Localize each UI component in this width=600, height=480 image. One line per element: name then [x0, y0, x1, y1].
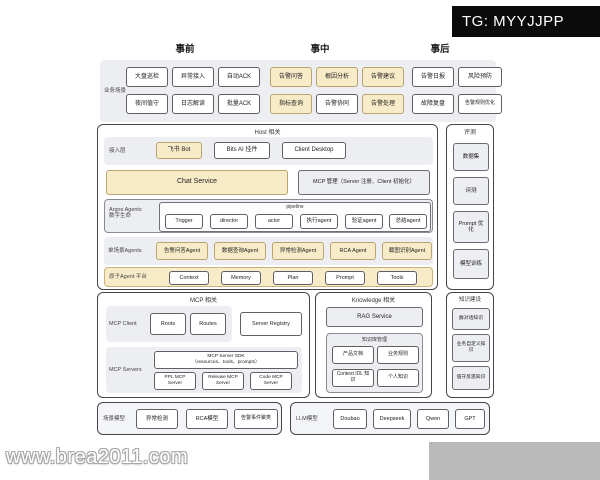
scene-models-frame: 场景模型 异常检测 RCA模型 告警事件聚类 — [97, 402, 282, 435]
business-scenario-box: 自动ACK — [218, 67, 260, 87]
server-registry-box: Server Registry — [240, 312, 302, 336]
bottom-right-overlay — [429, 442, 600, 480]
tg-watermark-bar: TG: MYYJJPP — [452, 6, 600, 37]
kb-management-title: 知识库管理 — [327, 336, 422, 343]
kb-item-box: 业务规则 — [377, 346, 419, 364]
chat-service-box: Chat Service — [106, 170, 288, 195]
prompt-optimize-box: Prompt 优化 — [453, 211, 489, 243]
agent-box: 异常检测Agent — [272, 242, 324, 260]
group-chat-knowledge-box: 群对话知识 — [452, 308, 490, 330]
kb-item-box: Context IDL 知识 — [332, 369, 374, 387]
host-frame: Host 相关 接入层 飞书 Bot Bits AI 挂件 Client Des… — [97, 124, 438, 290]
dataset-box: 数据集 — [453, 143, 489, 171]
pipeline-stage-box: Trigger — [165, 214, 203, 229]
phase-header-during: 事中 — [290, 41, 350, 55]
business-scenario-box: 告警协同 — [316, 94, 358, 114]
kb-item-box: 产品文档 — [332, 346, 374, 364]
llm-box: GPT — [455, 409, 485, 429]
business-scenario-box: 风险预防 — [458, 67, 502, 87]
llm-models-label: LLM模型 — [296, 415, 318, 421]
pipeline-stage-box: 验证agent — [345, 214, 383, 229]
phase-header-post: 事后 — [410, 41, 470, 55]
site-watermark-text: www.brea2011.com — [6, 446, 188, 469]
mcp-client-panel: MCP Client Roots Routes — [106, 306, 232, 342]
business-scenario-box: 夜间值守 — [126, 94, 168, 114]
llm-box: Doubao — [333, 409, 367, 429]
kb-management-panel: 知识库管理 产品文档 业务规则 Context IDL 知识 个人知识 — [326, 333, 423, 393]
pipeline-box: pipeline Trigger director actor 执行agent … — [159, 202, 431, 232]
agent-box: 数据查询Agent — [214, 242, 266, 260]
mcp-manage-box: MCP 管理（Server 注册、Client 初始化） — [298, 170, 430, 195]
host-frame-title: Host 相关 — [98, 127, 437, 136]
business-scenarios-label: 业务场景 — [104, 88, 126, 94]
sdk-line2: （resources、tools、prompts） — [192, 360, 260, 366]
scene-models-label: 场景模型 — [103, 415, 125, 421]
mcp-server-sdk-box: MCP Server SDK （resources、tools、prompts） — [154, 351, 298, 369]
business-scenario-box: 告警处理 — [362, 94, 404, 114]
agent-box: RCA Agent — [330, 242, 376, 260]
mcp-servers-panel: MCP Servers MCP Server SDK （resources、to… — [106, 347, 302, 393]
evaluation-frame: 评测 数据集 评测 Prompt 优化 模型训练 — [446, 124, 494, 290]
business-scenario-box: 故障复盘 — [412, 94, 454, 114]
pipeline-title: pipeline — [160, 204, 430, 210]
rag-service-box: RAG Service — [326, 307, 423, 327]
business-scenario-box: 指标查询 — [270, 94, 312, 114]
kb-item-box: 个人知识 — [377, 369, 419, 387]
bits-ai-widget-box: Bits AI 挂件 — [214, 142, 270, 159]
agent-box: 截图识别Agent — [382, 242, 432, 260]
pipeline-stage-box: 执行agent — [300, 214, 338, 229]
pipeline-stage-box: actor — [255, 214, 293, 229]
pipeline-stage-box: 总结agent — [389, 214, 427, 229]
scene-model-box: 异常检测 — [136, 409, 178, 429]
tg-watermark-text: TG: MYYJJPP — [462, 13, 564, 30]
business-scenario-box: 告警建议 — [362, 67, 404, 87]
access-layer-label: 接入层 — [109, 148, 126, 154]
atomic-capability-box: Plan — [273, 271, 313, 285]
business-scenario-box: 异常接入 — [172, 67, 214, 87]
mcp-server-box: PPL MCP Server — [154, 372, 196, 390]
argos-agents-panel: Argos Agents 数字生命 pipeline Trigger direc… — [104, 199, 433, 233]
llm-models-frame: LLM模型 Doubao Deepseek Qwen GPT — [290, 402, 490, 435]
routes-box: Routes — [190, 313, 226, 335]
argos-label-line2: 数字生命 — [109, 213, 142, 219]
mcp-servers-label: MCP Servers — [109, 367, 142, 373]
atomic-platform-label: 原子Agent 平台 — [109, 274, 147, 280]
single-agents-label: 单场景Agents — [108, 248, 142, 254]
business-scenario-box: 日志解读 — [172, 94, 214, 114]
single-agents-panel: 单场景Agents 告警问答Agent 数据查询Agent 异常检测Agent … — [104, 237, 433, 265]
roots-box: Roots — [150, 313, 186, 335]
business-scenario-box: 批量ACK — [218, 94, 260, 114]
llm-box: Qwen — [417, 409, 449, 429]
phase-header-pre: 事前 — [155, 41, 215, 55]
business-scenario-box: 告警规则优化 — [458, 94, 502, 114]
knowledge-build-frame: 知识建设 群对话知识 业务自定义知识 值守反思知识 — [446, 292, 494, 398]
knowledge-build-title: 知识建设 — [447, 295, 493, 303]
custom-knowledge-box: 业务自定义知识 — [452, 334, 490, 362]
feishu-bot-box: 飞书 Bot — [156, 142, 202, 159]
business-scenarios-panel: 业务场景 大盘巡检 异常接入 自动ACK 告警问答 根因分析 告警建议 告警日报… — [100, 60, 496, 122]
atomic-capability-box: Prompt — [325, 271, 365, 285]
evaluate-box: 评测 — [453, 177, 489, 205]
client-desktop-box: Client Desktop — [282, 142, 346, 159]
scene-model-box: 告警事件聚类 — [234, 409, 278, 429]
business-scenario-box: 大盘巡检 — [126, 67, 168, 87]
llm-box: Deepseek — [373, 409, 411, 429]
mcp-frame-title: MCP 相关 — [98, 295, 309, 304]
atomic-agent-platform-row: 原子Agent 平台 Context Memory Plan Prompt To… — [104, 267, 433, 287]
business-scenario-box: 告警日报 — [412, 67, 454, 87]
oncall-reflection-knowledge-box: 值守反思知识 — [452, 366, 490, 390]
evaluation-title: 评测 — [447, 127, 493, 136]
atomic-capability-box: Tools — [377, 271, 417, 285]
atomic-capability-box: Context — [169, 271, 209, 285]
model-training-box: 模型训练 — [453, 249, 489, 279]
access-layer-panel: 接入层 飞书 Bot Bits AI 挂件 Client Desktop — [104, 137, 433, 165]
scene-model-box: RCA模型 — [186, 409, 228, 429]
knowledge-frame-title: Knowledge 相关 — [316, 295, 431, 304]
business-scenario-box: 告警问答 — [270, 67, 312, 87]
mcp-server-box: Code MCP Server — [250, 372, 292, 390]
knowledge-frame: Knowledge 相关 RAG Service 知识库管理 产品文档 业务规则… — [315, 292, 432, 398]
atomic-capability-box: Memory — [221, 271, 261, 285]
business-scenario-box: 根因分析 — [316, 67, 358, 87]
agent-box: 告警问答Agent — [156, 242, 208, 260]
mcp-client-label: MCP Client — [109, 321, 137, 327]
mcp-server-box: Release MCP Server — [202, 372, 244, 390]
pipeline-stage-box: director — [210, 214, 248, 229]
argos-agents-label: Argos Agents 数字生命 — [109, 207, 142, 220]
mcp-frame: MCP 相关 MCP Client Roots Routes Server Re… — [97, 292, 310, 398]
